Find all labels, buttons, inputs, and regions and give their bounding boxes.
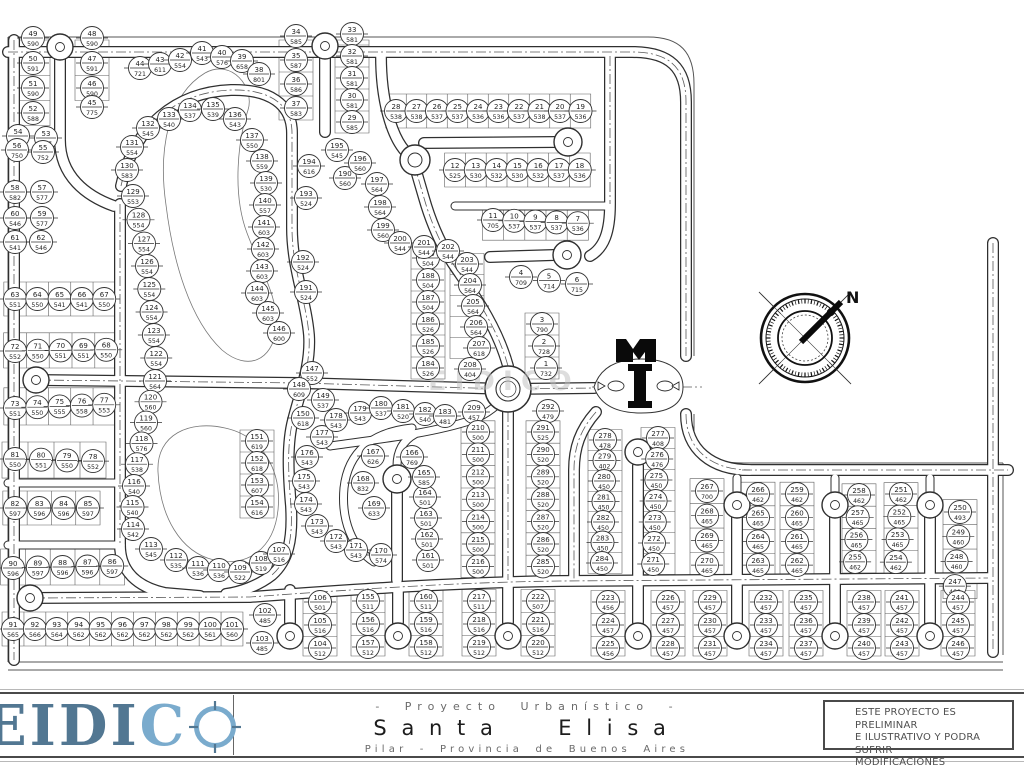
lot-area: 465 — [892, 542, 904, 549]
lot-area: 562 — [160, 632, 172, 639]
lot-marker: 263465 — [742, 554, 774, 577]
lot-marker: 33581 — [336, 23, 368, 46]
lot-number: 28 — [392, 103, 401, 111]
lot-number: 226 — [661, 594, 675, 602]
lot-number: 191 — [299, 284, 312, 292]
lot-number: 52 — [29, 105, 38, 113]
lot-number: 168 — [356, 475, 369, 483]
lot-number: 193 — [299, 190, 312, 198]
lot-area: 700 — [701, 494, 713, 501]
lot-number: 197 — [370, 176, 383, 184]
lot-number: 128 — [132, 212, 145, 220]
lot-group: 12525135301453215530165321753718536 — [439, 159, 596, 182]
lot-number: 227 — [661, 617, 674, 625]
lot-number: 213 — [471, 491, 484, 499]
lot-number: 177 — [315, 429, 328, 437]
lot-number: 68 — [102, 342, 111, 350]
lot-marker: 241457 — [886, 591, 918, 614]
lot-area: 550 — [32, 354, 44, 361]
lot-area: 457 — [952, 628, 964, 635]
lot-number: 144 — [250, 285, 264, 293]
lot-area: 586 — [290, 87, 302, 94]
lot-number: 107 — [272, 546, 285, 554]
lot-number: 222 — [531, 593, 544, 601]
lot-area: 576 — [136, 446, 148, 453]
lot-area: 537 — [551, 225, 563, 232]
lot-area: 596 — [81, 569, 93, 576]
lot-area: 709 — [515, 280, 527, 287]
lot-marker: 31581 — [336, 67, 368, 90]
lot-area: 457 — [760, 651, 772, 658]
lot-marker: 218516 — [463, 613, 495, 636]
lot-area: 543 — [330, 423, 342, 430]
lot-number: 263 — [751, 557, 764, 565]
lot-number: 195 — [330, 142, 343, 150]
lot-group: 232457233457234457 — [750, 591, 782, 660]
lot-number: 172 — [329, 533, 342, 541]
lot-number: 192 — [296, 254, 309, 262]
compass-rose-icon — [759, 292, 851, 384]
lot-marker: 122554 — [140, 347, 172, 370]
lot-number: 142 — [256, 241, 269, 249]
lot-number: 45 — [88, 99, 97, 107]
lot-number: 54 — [14, 128, 23, 136]
lot-area: 520 — [397, 414, 409, 421]
project-location: Pilar - Provincia de Buenos Aires — [233, 744, 821, 755]
lot-area: 554 — [146, 315, 158, 322]
lot-number: 132 — [141, 120, 154, 128]
lot-area: 609 — [293, 392, 305, 399]
lot-area: 501 — [422, 563, 434, 570]
lot-area: 536 — [572, 226, 584, 233]
lot-area: 450 — [650, 483, 662, 490]
lot-number: 66 — [77, 291, 86, 299]
lot-area: 465 — [752, 521, 764, 528]
lot-marker: 213500 — [462, 488, 494, 511]
lot-area: 532 — [491, 173, 503, 180]
lot-number: 103 — [255, 635, 268, 643]
lot-marker: 130583 — [111, 159, 143, 182]
lot-number: 288 — [536, 491, 549, 499]
lot-area: 457 — [896, 628, 908, 635]
lot-area: 530 — [470, 173, 482, 180]
lot-marker: 90596 — [0, 557, 29, 580]
lot-area: 512 — [362, 650, 374, 657]
lot-number: 229 — [703, 594, 716, 602]
lot-area: 535 — [170, 563, 182, 570]
lot-area: 457 — [858, 628, 870, 635]
lot-area: 520 — [537, 502, 549, 509]
lot-number: 9 — [533, 213, 537, 221]
lot-number: 199 — [376, 222, 389, 230]
lot-marker: 103485 — [246, 632, 278, 655]
lot-number: 121 — [148, 373, 161, 381]
lot-area: 465 — [791, 544, 803, 551]
lot-area: 550 — [31, 410, 43, 417]
lot-group: 139530140557141603142603143603 — [246, 172, 282, 283]
lot-number: 139 — [259, 175, 272, 183]
lot-area: 596 — [58, 511, 70, 518]
project-titles: - Proyecto Urbanístico - Santa Elisa Pil… — [233, 694, 821, 756]
lot-marker: 188504 — [412, 269, 444, 292]
lot-number: 211 — [471, 446, 484, 454]
lot-number: 159 — [419, 616, 432, 624]
lot-number: 31 — [348, 70, 357, 78]
lot-number: 272 — [647, 535, 660, 543]
project-type-label: - Proyecto Urbanístico - — [233, 700, 821, 713]
lot-area: 462 — [752, 497, 764, 504]
disclaimer-line: ESTE PROYECTO ES PRELIMINAR — [855, 707, 1008, 732]
lot-number: 126 — [140, 258, 154, 266]
lot-number: 19 — [576, 103, 585, 111]
lot-area: 562 — [73, 632, 85, 639]
lot-area: 540 — [419, 417, 431, 424]
lot-marker: 157512 — [352, 636, 384, 659]
lot-number: 84 — [59, 500, 68, 508]
lot-area: 554 — [150, 361, 162, 368]
lot-area: 522 — [234, 575, 246, 582]
lot-number: 259 — [790, 486, 803, 494]
lot-marker: 217511 — [463, 590, 495, 613]
lot-marker: 160511 — [410, 590, 442, 613]
lot-marker: 214500 — [462, 510, 494, 533]
lot-marker: 4709 — [505, 266, 537, 289]
lot-area: 552 — [87, 464, 99, 471]
lot-marker: 158512 — [410, 636, 442, 659]
lot-number: 160 — [419, 593, 432, 601]
lot-group: 6355164550655416654167550 — [0, 288, 120, 311]
eidico-logo: EIDIC — [0, 698, 241, 758]
lot-number: 64 — [33, 291, 42, 299]
lot-group: 6054659577 — [0, 207, 58, 230]
lot-area: 526 — [422, 349, 434, 356]
lot-area: 597 — [82, 511, 94, 518]
lot-number: 65 — [55, 291, 64, 299]
lot-number: 94 — [74, 621, 83, 629]
lot-area: 537 — [375, 411, 387, 418]
lot-area: 552 — [9, 354, 21, 361]
lot-number: 292 — [541, 403, 554, 411]
lot-group: 203544204564205564206564207618 — [451, 253, 495, 360]
lot-number: 48 — [88, 30, 97, 38]
lot-marker: 232457 — [750, 591, 782, 614]
lot-number: 127 — [137, 235, 150, 243]
lot-number: 284 — [595, 555, 609, 563]
logo-word-dark: EIDI — [0, 693, 140, 759]
lot-marker: 138559 — [246, 150, 278, 173]
lot-area: 537 — [529, 224, 541, 231]
lot-number: 181 — [396, 403, 409, 411]
lot-marker: 128554 — [123, 208, 155, 231]
lot-area: 714 — [543, 283, 555, 290]
lot-area: 457 — [662, 605, 674, 612]
lot-number: 269 — [700, 532, 713, 540]
lot-number: 81 — [11, 451, 20, 459]
lot-marker: 281450 — [588, 490, 620, 513]
lot-marker: 149537 — [307, 389, 339, 412]
lot-marker: 224457 — [592, 614, 624, 637]
lot-number: 267 — [700, 483, 713, 491]
lot-area: 539 — [207, 112, 219, 119]
lot-area: 565 — [7, 632, 19, 639]
lot-number: 10 — [510, 213, 519, 221]
lot-marker: 261465 — [781, 530, 813, 553]
lot-area: 537 — [184, 113, 196, 120]
lot-area: 558 — [76, 408, 88, 415]
lot-area: 530 — [260, 186, 272, 193]
lot-area: 554 — [143, 292, 155, 299]
lot-number: 129 — [126, 188, 139, 196]
lot-number: 26 — [433, 103, 442, 111]
lot-marker: 62546 — [25, 231, 57, 254]
lot-number: 178 — [329, 412, 342, 420]
lot-number: 231 — [703, 640, 716, 648]
lot-area: 564 — [371, 187, 383, 194]
lot-area: 516 — [420, 627, 432, 634]
lot-area: 564 — [470, 330, 482, 337]
lot-area: 525 — [537, 435, 549, 442]
lot-area: 550 — [9, 462, 21, 469]
lot-area: 462 — [791, 497, 803, 504]
lot-number: 256 — [850, 531, 864, 539]
lot-area: 500 — [472, 502, 484, 509]
lot-area: 562 — [117, 632, 129, 639]
lot-marker: 223456 — [592, 591, 624, 614]
lot-area: 596 — [7, 571, 19, 578]
lot-number: 154 — [250, 499, 264, 507]
lot-area: 457 — [896, 651, 908, 658]
lot-area: 603 — [257, 252, 269, 259]
lot-number: 77 — [100, 397, 109, 405]
lot-number: 279 — [598, 452, 611, 460]
lot-area: 562 — [182, 632, 194, 639]
lot-area: 500 — [472, 480, 484, 487]
lot-marker: 140557 — [249, 194, 281, 217]
lot-area: 603 — [251, 296, 263, 303]
lot-group: 180537181520182540 — [365, 397, 441, 426]
lot-number: 247 — [948, 578, 961, 586]
lot-area: 536 — [493, 114, 505, 121]
lot-number: 32 — [348, 48, 357, 56]
lot-area: 554 — [138, 246, 150, 253]
lot-marker: 164501 — [409, 486, 441, 509]
lot-area: 516 — [473, 627, 485, 634]
lot-area: 501 — [420, 521, 432, 528]
lot-number: 262 — [790, 557, 803, 565]
lot-marker: 251462 — [885, 483, 917, 506]
lot-area: 832 — [357, 486, 369, 493]
lot-area: 577 — [36, 221, 48, 228]
lot-marker: 250493 — [944, 501, 976, 524]
lot-number: 98 — [162, 621, 171, 629]
lot-number: 257 — [851, 509, 864, 517]
lot-number: 102 — [258, 607, 271, 615]
lot-area: 551 — [35, 463, 47, 470]
lot-number: 143 — [255, 263, 268, 271]
lot-area: 543 — [330, 544, 342, 551]
lot-number: 251 — [894, 486, 907, 494]
lot-marker: 51590 — [17, 77, 49, 100]
lot-number: 63 — [11, 291, 20, 299]
lot-number: 151 — [250, 433, 263, 441]
lot-marker: 291525 — [527, 421, 559, 444]
lot-number: 162 — [420, 531, 433, 539]
lot-marker: 255462 — [839, 550, 871, 573]
lot-number: 212 — [471, 469, 484, 477]
lot-area: 603 — [258, 230, 270, 237]
lot-area: 566 — [29, 632, 41, 639]
lot-number: 29 — [348, 114, 357, 122]
lot-area: 750 — [11, 153, 23, 160]
lot-marker: 282450 — [587, 511, 619, 534]
lot-number: 216 — [471, 558, 485, 566]
lot-number: 223 — [601, 594, 614, 602]
lot-number: 117 — [130, 456, 143, 464]
lot-area: 562 — [138, 632, 150, 639]
lot-area: 551 — [9, 302, 21, 309]
lot-number: 261 — [790, 533, 803, 541]
lot-marker: 57577 — [26, 181, 58, 204]
lot-area: 537 — [513, 114, 525, 121]
lot-area: 551 — [77, 353, 89, 360]
lot-number: 286 — [536, 536, 550, 544]
lot-number: 108 — [254, 555, 267, 563]
lot-area: 520 — [537, 457, 549, 464]
lot-number: 208 — [463, 361, 476, 369]
lot-group: 222507221516220512 — [522, 590, 554, 659]
lot-group: 226457227457228457 — [652, 591, 684, 660]
lot-number: 35 — [292, 52, 301, 60]
lot-marker: 121564 — [139, 370, 171, 393]
lot-marker: 275450 — [640, 469, 672, 492]
lot-marker: 125554 — [133, 278, 165, 301]
lot-number: 245 — [951, 617, 964, 625]
lot-area: 775 — [86, 110, 98, 117]
lot-area: 561 — [204, 632, 216, 639]
lot-area: 585 — [418, 480, 430, 487]
lot-group: 485904759146590 — [76, 27, 108, 100]
lot-number: 113 — [144, 541, 157, 549]
lot-marker: 219512 — [463, 636, 495, 659]
lot-group: 126554125554124554123554122554 — [131, 255, 172, 370]
lot-number: 75 — [55, 398, 64, 406]
lot-area: 616 — [303, 169, 315, 176]
lot-number: 187 — [421, 294, 434, 302]
lot-number: 140 — [258, 197, 271, 205]
lot-marker: 3790 — [526, 313, 558, 336]
lot-number: 249 — [952, 529, 965, 537]
lot-area: 541 — [54, 302, 66, 309]
lot-area: 790 — [536, 327, 548, 334]
lot-area: 532 — [532, 173, 544, 180]
lot-marker: 163501 — [410, 507, 442, 530]
lot-number: 97 — [140, 621, 149, 629]
lot-area: 564 — [51, 632, 63, 639]
lot-number: 285 — [536, 558, 549, 566]
lot-number: 282 — [596, 514, 609, 522]
lot-marker: 270465 — [691, 554, 723, 577]
lot-number: 156 — [361, 616, 375, 624]
lot-marker: 285520 — [527, 555, 559, 578]
lot-group: 166769167626 — [357, 445, 428, 469]
lot-number: 55 — [39, 144, 48, 152]
lot-area: 596 — [33, 511, 45, 518]
lot-number: 283 — [596, 534, 609, 542]
lot-number: 147 — [305, 365, 318, 373]
lot-number: 36 — [292, 76, 301, 84]
lot-number: 225 — [601, 640, 614, 648]
lot-area: 618 — [297, 421, 309, 428]
lot-marker: 197564 — [361, 173, 393, 196]
lot-area: 616 — [251, 510, 263, 517]
lot-number: 170 — [374, 547, 387, 555]
lot-number: 80 — [37, 452, 46, 460]
lot-area: 619 — [251, 444, 263, 451]
lot-area: 457 — [760, 605, 772, 612]
lot-area: 537 — [317, 403, 329, 410]
lot-area: 564 — [464, 288, 476, 295]
lot-number: 157 — [361, 639, 374, 647]
lot-area: 501 — [421, 542, 433, 549]
divider-line — [0, 689, 1024, 690]
lot-number: 202 — [441, 243, 454, 251]
lot-marker: 2728 — [528, 335, 560, 358]
lot-area: 485 — [259, 618, 271, 625]
lot-number: 82 — [11, 500, 20, 508]
lot-area: 450 — [647, 567, 659, 574]
lot-area: 582 — [9, 195, 21, 202]
lot-number: 241 — [895, 594, 908, 602]
lot-group: 155511156516157512 — [352, 590, 384, 659]
lot-area: 457 — [858, 605, 870, 612]
lot-marker: 165585 — [408, 466, 440, 489]
lot-marker: 236457 — [790, 614, 822, 637]
lot-area: 554 — [148, 338, 160, 345]
disclaimer-line: E ILUSTRATIVO Y PODRA SUFRIR — [855, 732, 1008, 757]
lot-area: 550 — [98, 302, 110, 309]
lot-area: 520 — [537, 480, 549, 487]
lot-marker: 252465 — [883, 505, 915, 528]
lot-marker: 52588 — [17, 102, 49, 125]
lot-marker: 105516 — [304, 614, 336, 637]
lot-marker: 159516 — [410, 613, 442, 636]
lot-marker: 45775 — [76, 96, 108, 119]
lot-marker: 254462 — [880, 551, 912, 574]
lot-area: 607 — [251, 488, 263, 495]
entrance-gate — [594, 339, 683, 413]
lot-number: 276 — [651, 451, 665, 459]
lot-number: 109 — [233, 564, 246, 572]
lot-group: 200544201544202544 — [384, 232, 464, 263]
lot-area: 450 — [596, 566, 608, 573]
lot-area: 618 — [251, 466, 263, 473]
lot-area: 512 — [420, 650, 432, 657]
lot-number: 5 — [547, 272, 551, 280]
lot-number: 119 — [139, 414, 152, 422]
lot-number: 47 — [88, 55, 97, 63]
lot-marker: 85597 — [72, 497, 104, 520]
lot-group: 2105002115002125002135002145002155002165… — [462, 421, 494, 578]
lot-marker: 239457 — [848, 614, 880, 637]
lot-group: 1170510537953785377536 — [477, 209, 594, 235]
lot-area: 526 — [422, 327, 434, 334]
lot-area: 516 — [314, 628, 326, 635]
lot-area: 457 — [952, 651, 964, 658]
lot-number: 206 — [469, 319, 483, 327]
lot-marker: 126554 — [131, 255, 163, 278]
site-plan-map: N EIDICO 4959050591515905258854598535974… — [0, 0, 1024, 690]
lot-area: 544 — [418, 250, 430, 257]
